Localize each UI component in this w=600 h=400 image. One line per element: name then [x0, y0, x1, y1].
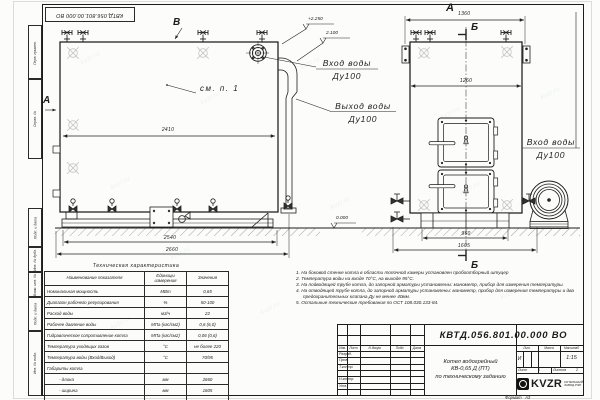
valve-icon	[391, 194, 403, 204]
table-title: Техническая характеристика	[44, 263, 228, 269]
sheets-value: 2	[576, 368, 578, 372]
table-row: - длинамм2660	[45, 374, 229, 385]
section-label-b-top: Б	[471, 22, 478, 33]
position-marker-icon	[197, 47, 209, 59]
view-label-a: А	[446, 2, 454, 14]
cell: °С	[145, 352, 187, 363]
base-frame	[62, 207, 273, 227]
lit-header: Лит.	[516, 346, 538, 350]
position-marker-icon	[67, 47, 79, 59]
tb-header: Дата	[410, 346, 424, 350]
valve-icon	[425, 30, 435, 42]
flange-icon	[246, 41, 270, 65]
valve-icon	[257, 30, 267, 42]
cell: Рабочее давление воды	[45, 319, 145, 330]
cell	[145, 363, 187, 374]
brand-name: KVZR	[531, 378, 562, 390]
cell: МПа (кгс/см2)	[145, 330, 187, 341]
scale-value: 1:15	[560, 355, 583, 361]
door-hinge	[494, 127, 498, 135]
sheet-label: Лист	[518, 368, 527, 372]
valve-icon	[62, 30, 72, 42]
tb-role: Н.контр.	[339, 377, 354, 381]
tb-header: Подп.	[390, 346, 410, 350]
dim-960: 960	[448, 231, 484, 237]
door-latch	[429, 142, 455, 145]
cell: 0,06 (0,6)	[187, 330, 229, 341]
valve-icon	[78, 30, 88, 42]
product-line: Котел водогрейный	[425, 359, 516, 366]
format-label: Формат	[505, 395, 522, 400]
cell: м3/ч	[145, 308, 187, 319]
port-label-inlet-left: Вход воды	[316, 58, 378, 68]
cell: мм	[145, 396, 187, 400]
col-header: Единицы измерения	[145, 272, 187, 286]
product-line: по техническому заданию	[425, 374, 516, 381]
cell: - длина	[45, 374, 145, 385]
position-marker-icon	[501, 46, 513, 58]
elevation-top: +2.250	[308, 17, 323, 22]
cell: мм	[145, 385, 187, 396]
dim-1260: 1260	[448, 78, 484, 84]
elevation-zero: 0.000	[336, 216, 348, 221]
tech-characteristics-table: Наименование показателя Единицы измерени…	[44, 271, 229, 400]
valve-icon	[108, 199, 117, 212]
position-marker-icon	[67, 119, 79, 131]
product-line: КВ-0,65 Д (ПТ)	[425, 366, 516, 373]
port-label-inlet-right: Вход воды	[520, 137, 582, 147]
table-row: Температура уходящих газов°Сне более 220	[45, 341, 229, 352]
note-item: 5. Остальные технические требования по О…	[296, 300, 582, 306]
elevation-mark-icon	[331, 223, 356, 228]
dim-2660: 2660	[152, 247, 192, 253]
logo-icon	[517, 378, 529, 390]
cell: Температура уходящих газов	[45, 341, 145, 352]
port-label-inlet-left-size: Ду100	[316, 71, 378, 81]
position-marker-icon	[418, 199, 430, 211]
cell: МВт	[145, 286, 187, 297]
cell: Расход воды	[45, 308, 145, 319]
position-marker-icon	[67, 162, 79, 174]
valve-icon	[391, 212, 403, 222]
cell: Гидравлическое сопротивление котла	[45, 330, 145, 341]
cell: 1605	[187, 385, 229, 396]
port-label-outlet-size: Ду100	[330, 114, 396, 124]
door-hinge	[494, 199, 498, 207]
cell: Температура воды (Вход/Выход)	[45, 352, 145, 363]
cell: 0,65	[187, 286, 229, 297]
valve-icon	[411, 30, 421, 42]
col-header: Наименование показателя	[45, 272, 145, 286]
section-label-a: А	[43, 95, 50, 106]
table-row: Диапазон рабочего регулирования%50-100	[45, 297, 229, 308]
position-marker-icon	[418, 47, 430, 59]
view-label-b: В	[173, 17, 180, 28]
table-row: Рабочее давление водыМПа (кгс/см2)0,6 (6…	[45, 319, 229, 330]
door-hinge	[494, 178, 498, 186]
table-row: Гидравлическое сопротивление котлаМПа (к…	[45, 330, 229, 341]
cell: Номинальная мощность	[45, 286, 145, 297]
cell: МПа (кгс/см2)	[145, 319, 187, 330]
cell: %	[145, 297, 187, 308]
ground	[55, 228, 580, 236]
cell: 2250	[187, 396, 229, 400]
valve-icon	[69, 199, 78, 212]
title-block: КВТД.056.801.00.000 ВО Котел водогрейный…	[337, 324, 584, 396]
table-row: - высотамм2250	[45, 396, 229, 400]
table-header-row: Наименование показателя Единицы измерени…	[45, 272, 229, 286]
port-label-inlet-right-size: Ду100	[520, 150, 582, 160]
tb-role: Утв.	[339, 384, 347, 388]
cell: Диапазон рабочего регулирования	[45, 297, 145, 308]
drawing-sheet: kvzr.ru kvzr.ru kvzr.ru kvzr.ru kvzr.ru …	[0, 0, 600, 400]
door-latch	[429, 185, 455, 188]
cell: не более 220	[187, 341, 229, 352]
dim-1605: 1605	[446, 243, 482, 249]
valve-icon	[523, 194, 535, 204]
cell: 0,6 (6,0)	[187, 319, 229, 330]
cell: - ширина	[45, 385, 145, 396]
cell: 50-100	[187, 297, 229, 308]
valve-icon	[173, 199, 182, 212]
port-label-outlet: Выход воды	[330, 101, 396, 111]
tb-header: Изм.	[338, 346, 347, 350]
cell: 70/95	[187, 352, 229, 363]
tb-role: Т.контр.	[339, 365, 354, 369]
cell: Габариты котла	[45, 363, 145, 374]
tb-role: Пров.	[339, 358, 348, 362]
format-value: А3	[525, 395, 530, 400]
dim-2410: 2410	[148, 127, 188, 133]
valve-icon	[198, 30, 208, 42]
technical-notes: 1. На боковой стенке котла в области топ…	[296, 270, 582, 306]
tb-role: Разраб.	[339, 352, 352, 356]
outlet-pipe	[278, 58, 297, 213]
cell: 2660	[187, 374, 229, 385]
brand-subtitle: КОТЕЛЬНЫЙ ЗАВОД РЭП	[564, 381, 583, 388]
valve-icon	[209, 199, 218, 212]
see-note-label: см. п. 1	[200, 84, 239, 93]
furnace-door-upper	[429, 118, 498, 167]
format-note: Формат А3	[505, 395, 530, 400]
note-item: 4. На отводящей трубе котла, до запорной…	[296, 288, 582, 300]
base-frame	[421, 213, 509, 228]
valve-icon	[284, 196, 293, 209]
product-name: Котел водогрейный КВ-0,65 Д (ПТ) по техн…	[425, 345, 516, 395]
position-marker-icon	[501, 199, 513, 211]
sheets-label: Листов	[553, 368, 566, 372]
doc-number: КВТД.056.801.00.000 ВО	[425, 327, 582, 344]
sheet-value: 1	[538, 368, 540, 372]
valve-icon	[501, 30, 511, 42]
cell: °С	[145, 341, 187, 352]
table-row: Расход водым3/ч22	[45, 308, 229, 319]
brand-sub-line: ЗАВОД РЭП	[564, 383, 581, 387]
furnace-door-lower	[429, 170, 498, 213]
fan-icon	[530, 181, 568, 229]
cell: 22	[187, 308, 229, 319]
table-row: Температура воды (Вход/Выход)°С70/95	[45, 352, 229, 363]
elevation-mid: 2.100	[326, 31, 338, 36]
table-row: Номинальная мощностьМВт0,65	[45, 286, 229, 297]
lit-value: И	[516, 356, 523, 362]
scale-header: Масштаб	[560, 346, 583, 350]
table-row: Габариты котла	[45, 363, 229, 374]
cell: мм	[145, 374, 187, 385]
table-row: - ширинамм1605	[45, 385, 229, 396]
dim-2540: 2540	[150, 235, 190, 241]
mass-header: Масса	[538, 346, 560, 350]
manufacturer-logo: KVZR КОТЕЛЬНЫЙ ЗАВОД РЭП	[517, 373, 583, 395]
cell	[187, 363, 229, 374]
tb-header: N докум.	[360, 346, 390, 350]
door-hinge	[494, 151, 498, 159]
col-header: Значения	[187, 272, 229, 286]
cell: - высота	[45, 396, 145, 400]
dim-1360: 1360	[458, 11, 488, 17]
tb-header: Лист	[347, 346, 360, 350]
